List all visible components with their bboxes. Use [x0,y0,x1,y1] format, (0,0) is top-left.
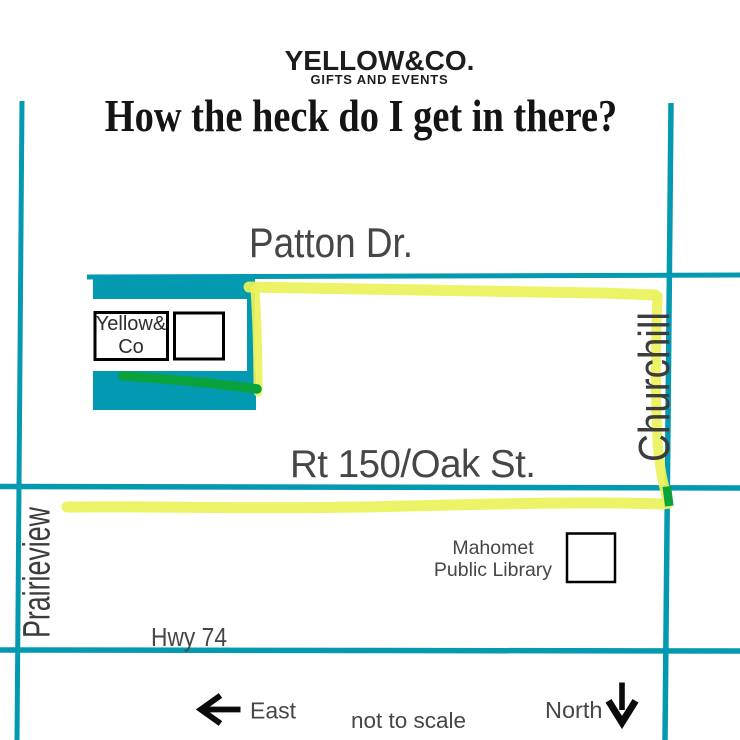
svg-text:Rt 150/Oak St.: Rt 150/Oak St. [290,443,536,486]
svg-text:North: North [545,697,602,723]
svg-text:Patton Dr.: Patton Dr. [249,219,413,266]
svg-text:Yellow&: Yellow& [96,313,167,335]
svg-text:Prairieview: Prairieview [17,507,59,638]
svg-text:not to scale: not to scale [351,708,466,733]
svg-text:Mahomet: Mahomet [452,537,534,559]
svg-text:Churchill: Churchill [630,312,679,462]
svg-text:Public Library: Public Library [434,559,552,581]
svg-text:Co: Co [118,336,144,358]
svg-text:Hwy 74: Hwy 74 [151,624,227,652]
svg-text:East: East [250,698,297,724]
